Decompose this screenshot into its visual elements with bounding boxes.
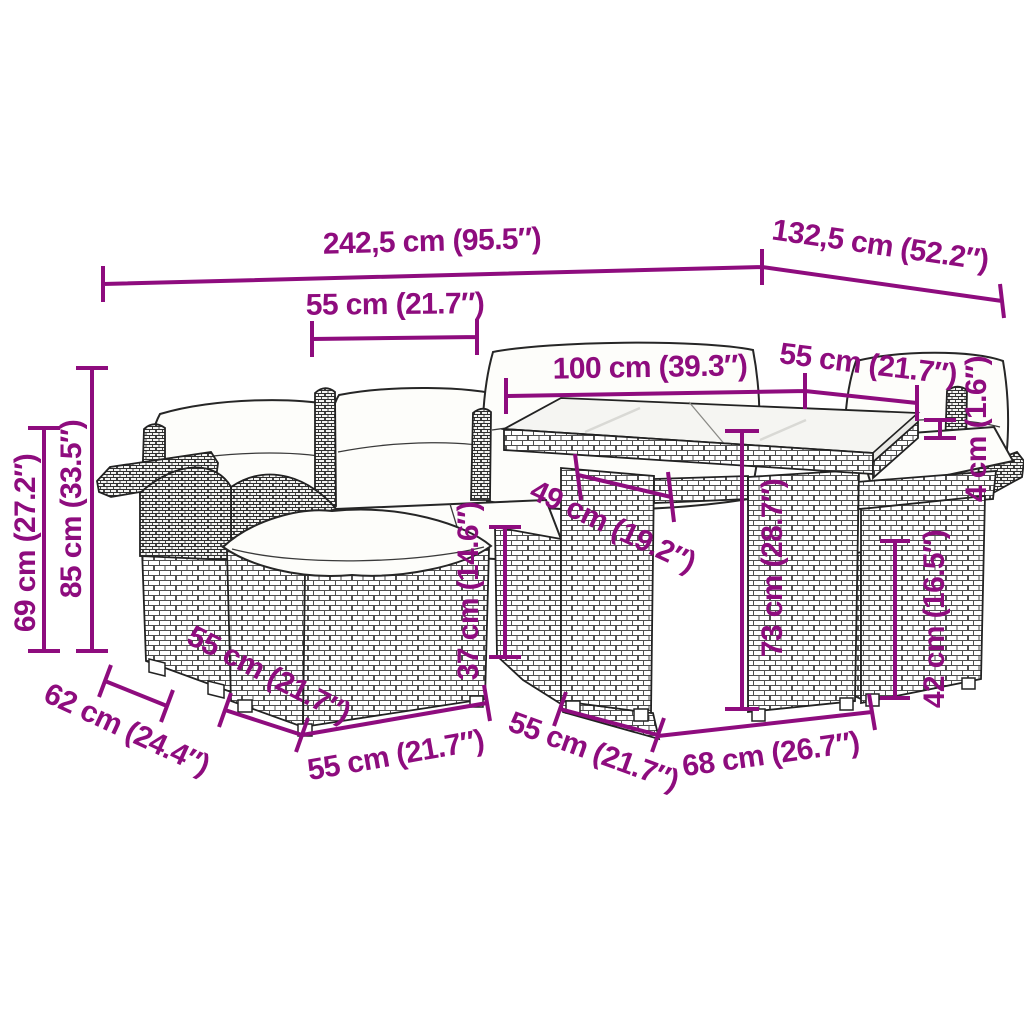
frame-post-chair bbox=[471, 409, 491, 500]
ottoman-foot bbox=[238, 700, 252, 712]
dim-label-table-height: 73 cm (28.7″) bbox=[756, 479, 789, 657]
furniture-dimension-diagram: 242,5 cm (95.5″)132,5 cm (52.2″)55 cm (2… bbox=[0, 0, 1024, 1024]
table-foot bbox=[634, 709, 648, 721]
sofa-front-panel-top-band bbox=[140, 467, 231, 560]
dim-label-backrest-width: 55 cm (21.7″) bbox=[306, 287, 485, 322]
armchair-foot bbox=[962, 678, 975, 689]
dim-label-seat-height: 37 cm (14.6″) bbox=[452, 502, 485, 680]
dim-label-back-height: 85 cm (33.5″) bbox=[55, 420, 88, 598]
dim-label-table-length: 100 cm (39.3″) bbox=[552, 349, 747, 385]
table-foot bbox=[840, 698, 853, 710]
dim-label-base-height: 42 cm (16.5″) bbox=[918, 530, 951, 708]
dim-label-glass-thickness: 4 cm (1.6″) bbox=[960, 356, 993, 502]
frame-post-between-cushions bbox=[315, 388, 336, 506]
dim-label-arm-height: 69 cm (27.2″) bbox=[9, 454, 42, 632]
ottoman bbox=[223, 510, 491, 736]
dim-label-total-width: 242,5 cm (95.5″) bbox=[322, 222, 541, 261]
